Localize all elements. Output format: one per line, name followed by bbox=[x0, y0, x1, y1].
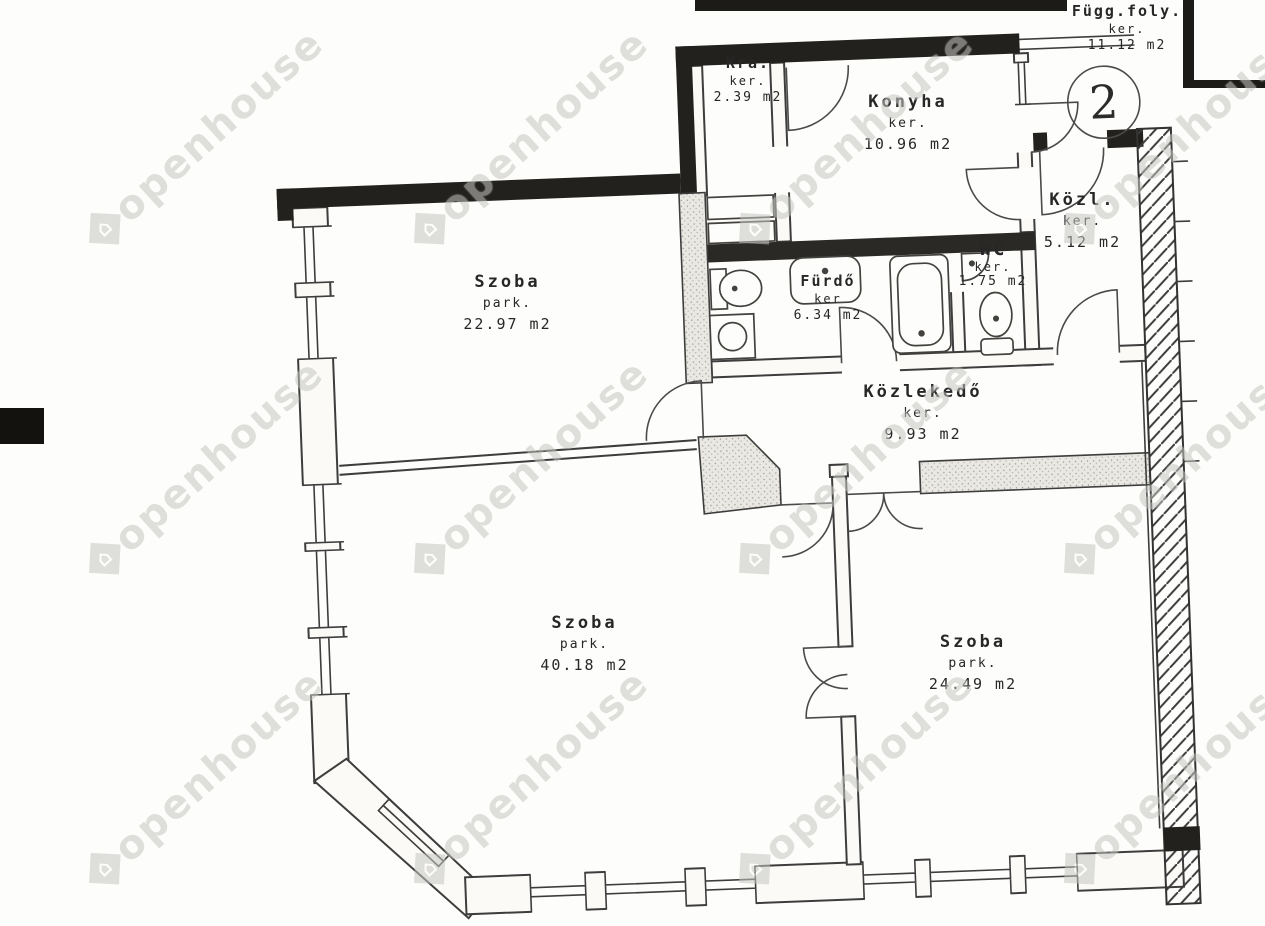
room-name: Szoba bbox=[908, 632, 1038, 652]
room-name: Szoba bbox=[445, 272, 570, 292]
room-finish: park. bbox=[522, 637, 647, 652]
room-name: Fürdő bbox=[778, 272, 878, 290]
room-label-fugg-foly: Függ.foly. ker. 11.12 m2 bbox=[1042, 2, 1212, 53]
room-label-kozlekedo: Közlekedő ker. 9.93 m2 bbox=[848, 382, 998, 443]
room-area: 1.75 m2 bbox=[953, 274, 1033, 289]
room-area: 2.39 m2 bbox=[703, 90, 793, 105]
toilet bbox=[981, 338, 1014, 355]
door-arc bbox=[966, 168, 1020, 222]
room-area: 5.12 m2 bbox=[1020, 233, 1145, 251]
toilet bbox=[979, 292, 1013, 337]
door-arc bbox=[847, 492, 922, 532]
room-area: 10.96 m2 bbox=[843, 135, 973, 153]
plan-geometry: 2 bbox=[272, 27, 1216, 926]
room-finish: ker. bbox=[848, 406, 998, 421]
bidet bbox=[719, 270, 762, 308]
room-name: Közlekedő bbox=[848, 382, 998, 402]
room-label-konyha: Konyha ker. 10.96 m2 bbox=[843, 92, 973, 153]
room-label-furdo: Fürdő ker 6.34 m2 bbox=[778, 272, 878, 323]
room-area: 40.18 m2 bbox=[522, 656, 647, 674]
door-arc bbox=[781, 503, 835, 557]
room-finish: ker. bbox=[1020, 214, 1145, 229]
hatched-wall bbox=[1133, 127, 1216, 904]
room-finish: park. bbox=[908, 656, 1038, 671]
room-name: Függ.foly. bbox=[1042, 2, 1212, 20]
room-area: 9.93 m2 bbox=[848, 425, 998, 443]
room-label-kozl: Közl. ker. 5.12 m2 bbox=[1020, 190, 1145, 251]
room-label-szoba-1: Szoba park. 22.97 m2 bbox=[445, 272, 570, 333]
room-label-szoba-2: Szoba park. 40.18 m2 bbox=[522, 613, 647, 674]
room-area: 24.49 m2 bbox=[908, 675, 1038, 693]
washing-machine bbox=[718, 322, 747, 351]
room-name: Szoba bbox=[522, 613, 647, 633]
room-finish: ker bbox=[778, 292, 878, 306]
room-finish: ker. bbox=[1042, 22, 1212, 36]
room-area: 22.97 m2 bbox=[445, 315, 570, 333]
room-finish: ker. bbox=[953, 260, 1033, 274]
floor-plan-page: 2 Függ.foly. ker. 11.12 m2 Kra. ker. 2.3… bbox=[0, 0, 1265, 926]
room-label-wc: WC ker. 1.75 m2 bbox=[953, 238, 1033, 289]
room-name: Kra. bbox=[703, 54, 793, 72]
room-name: Közl. bbox=[1020, 190, 1145, 210]
shelf bbox=[708, 221, 775, 244]
room-finish: ker. bbox=[843, 116, 973, 131]
room-finish: ker. bbox=[703, 74, 793, 88]
door-arc bbox=[786, 66, 850, 130]
partition-wall bbox=[340, 440, 697, 475]
door-arc bbox=[644, 381, 703, 440]
room-label-kra: Kra. ker. 2.39 m2 bbox=[703, 54, 793, 105]
room-finish: park. bbox=[445, 296, 570, 311]
floor-plan-drawing: 2 bbox=[0, 0, 1265, 926]
room-label-szoba-3: Szoba park. 24.49 m2 bbox=[908, 632, 1038, 693]
room-area: 6.34 m2 bbox=[778, 308, 878, 323]
door-arc bbox=[804, 647, 849, 719]
room-name: Konyha bbox=[843, 92, 973, 112]
apartment-number: 2 bbox=[1088, 75, 1119, 130]
shelf bbox=[707, 195, 774, 220]
room-name: WC bbox=[953, 238, 1033, 260]
room-area: 11.12 m2 bbox=[1042, 38, 1212, 53]
